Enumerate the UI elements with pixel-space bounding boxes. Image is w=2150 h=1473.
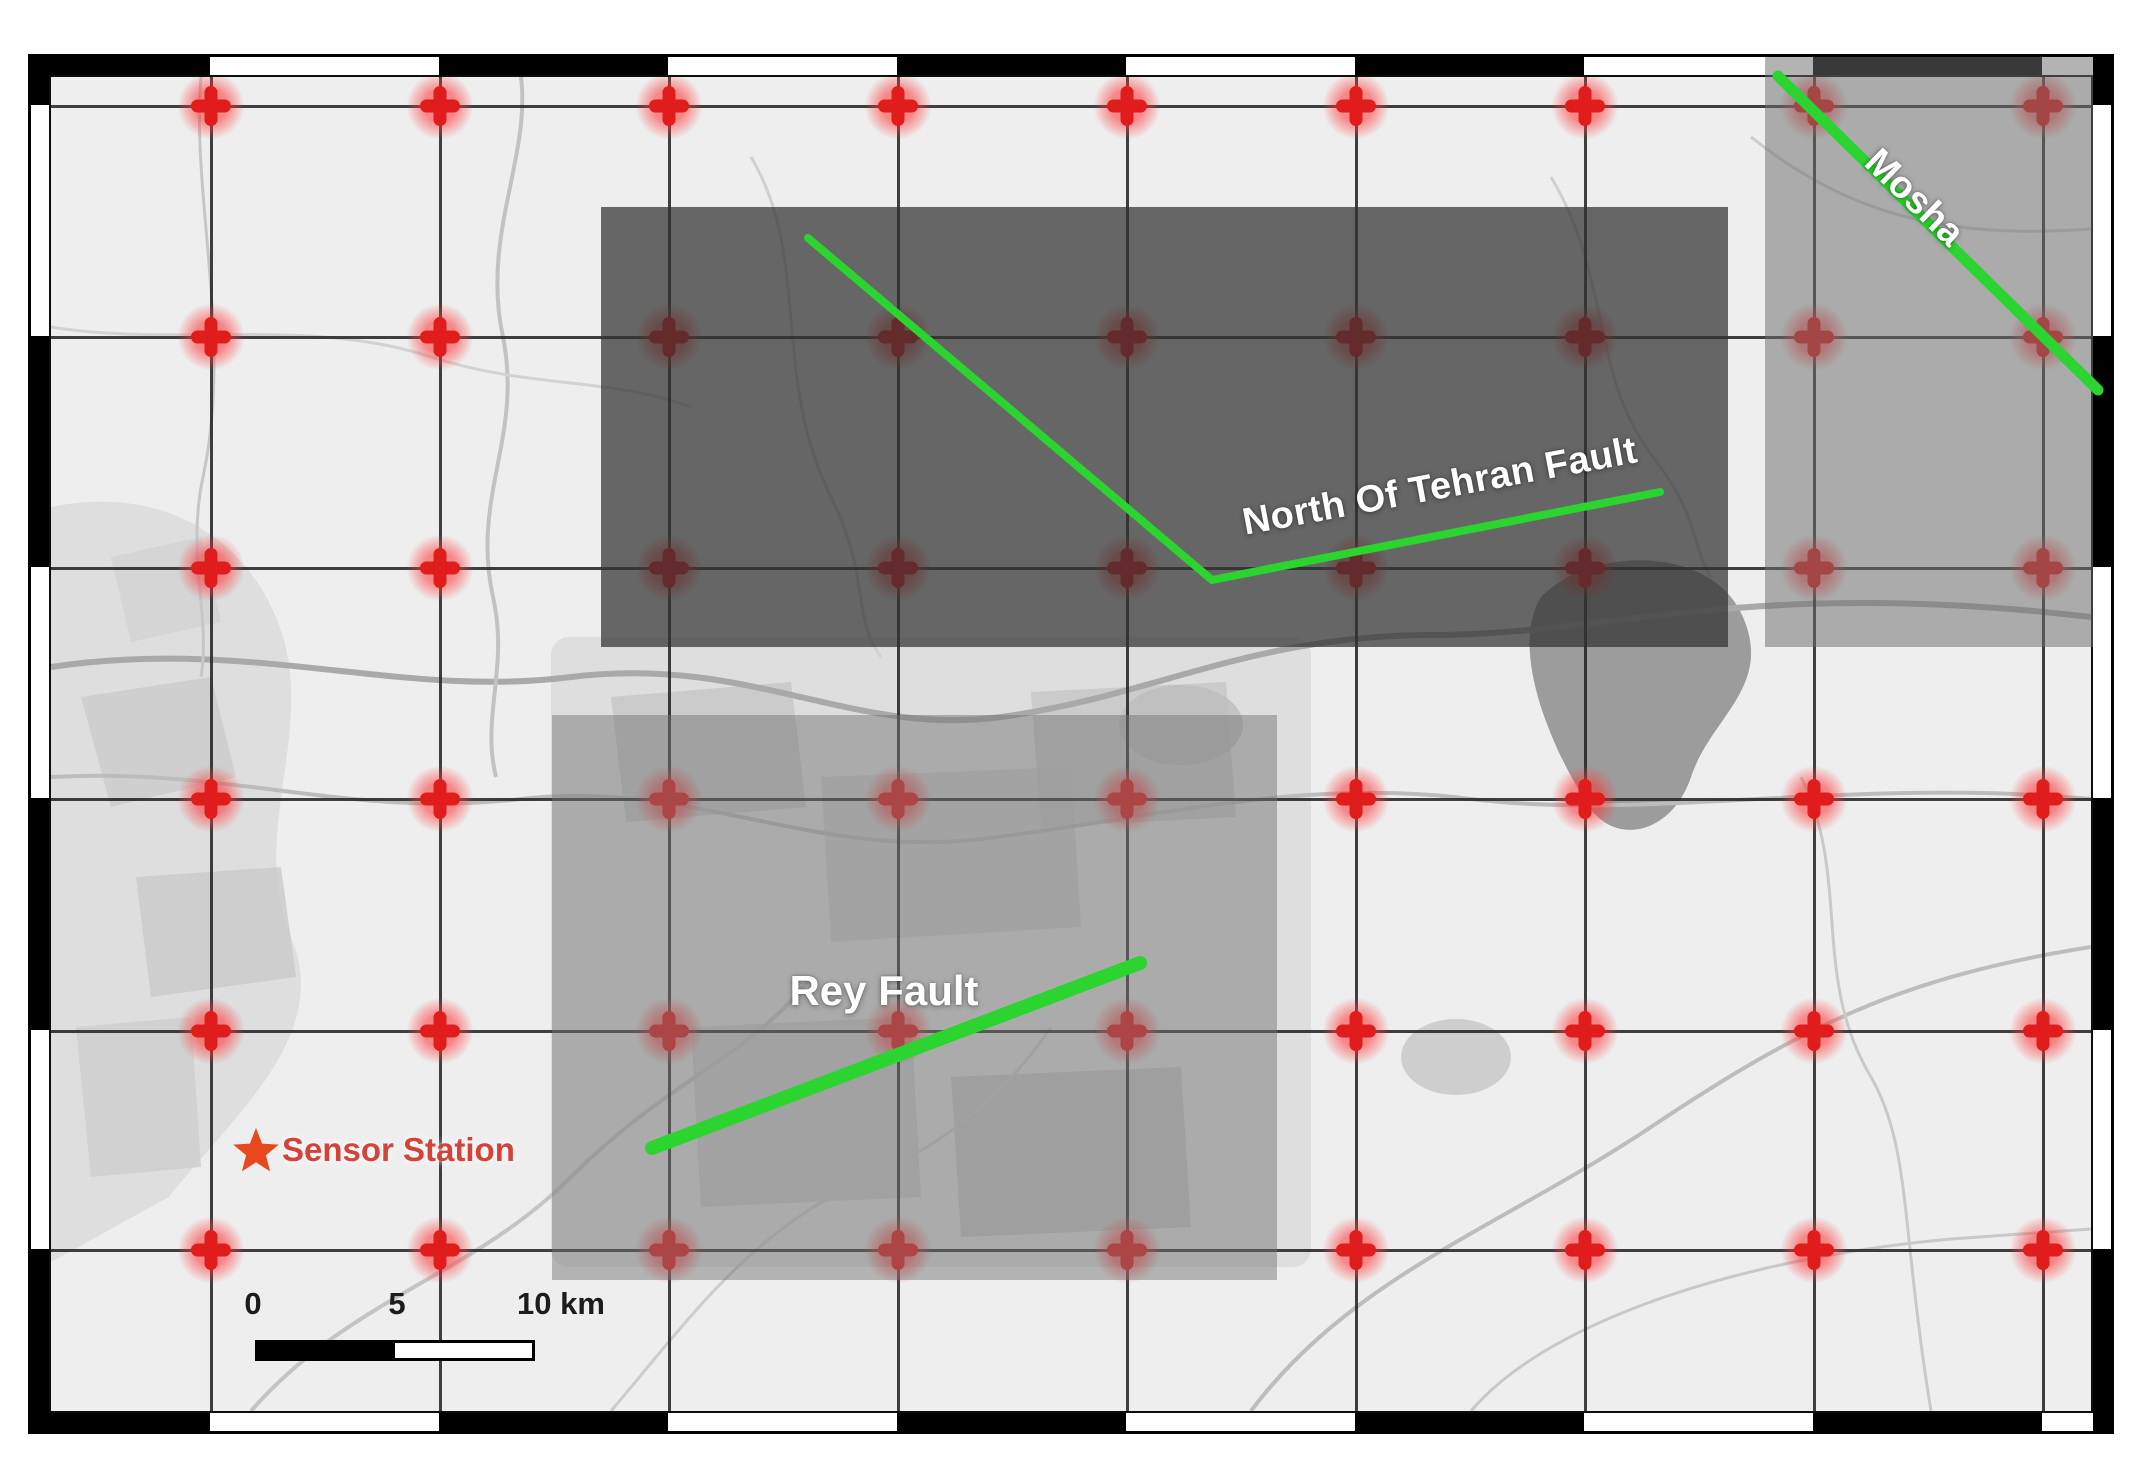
frame-band-bottom: [31, 1413, 2111, 1431]
frame-tick: [2093, 798, 2111, 1030]
frame-tick: [897, 1413, 1126, 1431]
scale-bar-rect: [255, 1340, 535, 1361]
frame-tick: [897, 57, 1126, 75]
frame-tick: [31, 336, 49, 567]
frame-tick: [31, 57, 210, 75]
frame-tick: [2093, 57, 2111, 105]
frame-tick: [31, 57, 49, 105]
frame-band-left: [31, 57, 49, 1431]
frame-tick: [439, 1413, 668, 1431]
grid-line-vertical: [439, 77, 442, 1411]
sensor-station-label: Sensor Station: [282, 1131, 515, 1169]
frame-band-right: [2093, 57, 2111, 1431]
frame-tick: [1813, 1413, 2042, 1431]
grid-line-vertical: [210, 77, 213, 1411]
frame-tick: [439, 57, 668, 75]
fault-label-rey: Rey Fault: [789, 967, 978, 1015]
frame-tick: [31, 1413, 210, 1431]
scale-tick-5: 5: [388, 1286, 405, 1322]
scale-bar-filled-half: [258, 1343, 395, 1358]
sensor-station: Sensor Station: [232, 1127, 515, 1173]
scale-tick-10km: 10 km: [517, 1286, 605, 1322]
frame-tick: [2093, 336, 2111, 567]
frame-tick: [1355, 57, 1584, 75]
map-figure: North Of Tehran Fault Mosha Rey Fault Se…: [0, 0, 2150, 1473]
overlay-north-tehran-region: [601, 207, 1728, 647]
frame-tick: [1355, 1413, 1584, 1431]
frame-tick: [31, 1249, 49, 1431]
star-icon: [232, 1127, 280, 1173]
frame-tick: [31, 798, 49, 1030]
overlay-mosha-region: [1765, 57, 2093, 647]
scale-tick-0: 0: [244, 1286, 261, 1322]
frame-tick: [2093, 1249, 2111, 1431]
